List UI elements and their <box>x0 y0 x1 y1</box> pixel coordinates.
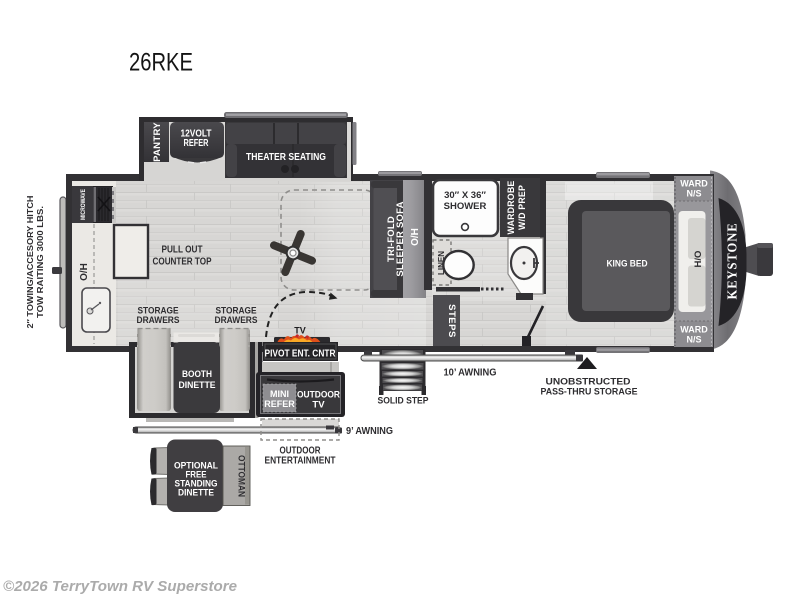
svg-text:©2026 TerryTown RV Superstore: ©2026 TerryTown RV Superstore <box>3 578 237 595</box>
svg-text:TV: TV <box>312 400 325 411</box>
svg-text:DINETTE: DINETTE <box>178 488 214 498</box>
svg-text:SHOWER: SHOWER <box>444 201 487 212</box>
svg-text:9’ AWNING: 9’ AWNING <box>346 426 393 437</box>
svg-text:KING BED: KING BED <box>607 259 648 270</box>
svg-text:MICROWAVE: MICROWAVE <box>80 188 87 220</box>
svg-text:DINETTE: DINETTE <box>179 380 216 391</box>
svg-text:KEYSTONE: KEYSTONE <box>725 223 740 300</box>
svg-text:PANTRY: PANTRY <box>152 122 163 162</box>
svg-text:ENTERTAINMENT: ENTERTAINMENT <box>265 456 336 467</box>
svg-text:DRAWERS: DRAWERS <box>215 315 258 326</box>
svg-text:WARDROBE: WARDROBE <box>506 181 516 235</box>
svg-text:TV: TV <box>294 326 306 336</box>
svg-text:O/H: O/H <box>410 228 421 246</box>
svg-text:MINI: MINI <box>270 389 289 399</box>
svg-text:W/D PREP: W/D PREP <box>517 185 527 230</box>
svg-text:PULL OUT: PULL OUT <box>162 245 203 256</box>
svg-text:REFER: REFER <box>184 138 210 149</box>
svg-text:PASS-THRU STORAGE: PASS-THRU STORAGE <box>541 387 638 398</box>
svg-text:WARD: WARD <box>680 325 708 335</box>
svg-text:TOW RAITING 3000 LBS.: TOW RAITING 3000 LBS. <box>35 206 45 318</box>
svg-text:10’ AWNING: 10’ AWNING <box>444 368 497 379</box>
svg-text:DRAWERS: DRAWERS <box>137 315 180 326</box>
svg-text:2″ TOWING/ACCESORY HITCH: 2″ TOWING/ACCESORY HITCH <box>25 196 35 329</box>
svg-text:N/S: N/S <box>686 335 701 345</box>
svg-text:COUNTER TOP: COUNTER TOP <box>153 257 212 268</box>
svg-text:26RKE: 26RKE <box>129 49 193 77</box>
svg-text:H/O: H/O <box>693 251 704 268</box>
svg-text:N/S: N/S <box>686 189 701 199</box>
svg-text:SOLID STEP: SOLID STEP <box>378 396 430 407</box>
svg-text:WARD: WARD <box>680 179 708 189</box>
svg-text:O/H: O/H <box>79 263 90 281</box>
svg-text:THEATER SEATING: THEATER SEATING <box>246 151 326 163</box>
svg-text:OTTOMAN: OTTOMAN <box>236 455 247 497</box>
svg-text:30″ X 36″: 30″ X 36″ <box>444 190 486 201</box>
svg-text:BOOTH: BOOTH <box>182 369 212 380</box>
svg-text:PIVOT ENT. CNTR: PIVOT ENT. CNTR <box>265 349 337 360</box>
svg-text:STEPS: STEPS <box>446 304 457 338</box>
svg-text:REFER: REFER <box>264 399 295 409</box>
